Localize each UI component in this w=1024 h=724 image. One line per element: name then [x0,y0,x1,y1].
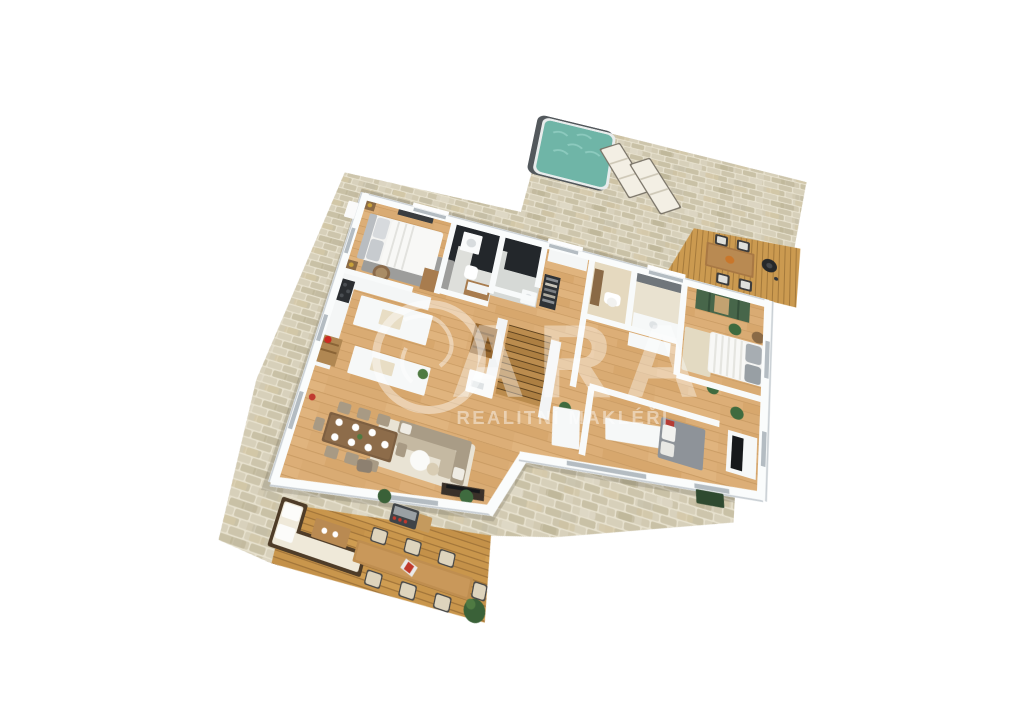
svg-text:REALITNÍ MAKLÉŘI: REALITNÍ MAKLÉŘI [456,407,669,428]
svg-text:ARA: ARA [450,304,711,420]
